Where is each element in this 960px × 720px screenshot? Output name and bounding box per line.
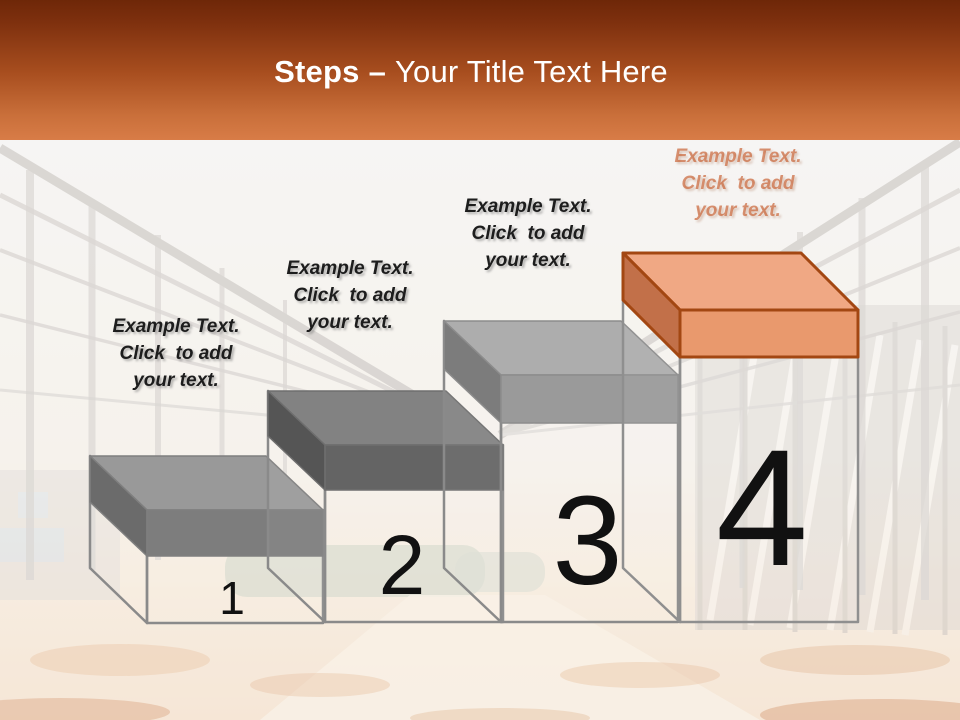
- step-4-cap-front: [680, 310, 858, 357]
- step-1-label-line: Click to add: [66, 340, 286, 367]
- step-2-number: 2: [313, 523, 491, 607]
- step-3-label-line: Click to add: [418, 220, 638, 247]
- slide: Steps – Your Title Text Here: [0, 0, 960, 720]
- step-3-label: Example Text. Click to add your text.: [418, 193, 638, 274]
- step-4-number: 4: [673, 426, 851, 592]
- step-3-label-line: your text.: [418, 247, 638, 274]
- step-4-label-line: Example Text.: [628, 143, 848, 170]
- step-2-label-line: your text.: [240, 309, 460, 336]
- step-4-label-line: Click to add: [628, 170, 848, 197]
- step-1-label-line: your text.: [66, 367, 286, 394]
- step-3-label-line: Example Text.: [418, 193, 638, 220]
- step-2-label-line: Click to add: [240, 282, 460, 309]
- step-4-label: Example Text. Click to add your text.: [628, 143, 848, 224]
- step-4-label-line: your text.: [628, 197, 848, 224]
- step-3-number: 3: [499, 478, 676, 604]
- step-1-number: 1: [144, 575, 320, 621]
